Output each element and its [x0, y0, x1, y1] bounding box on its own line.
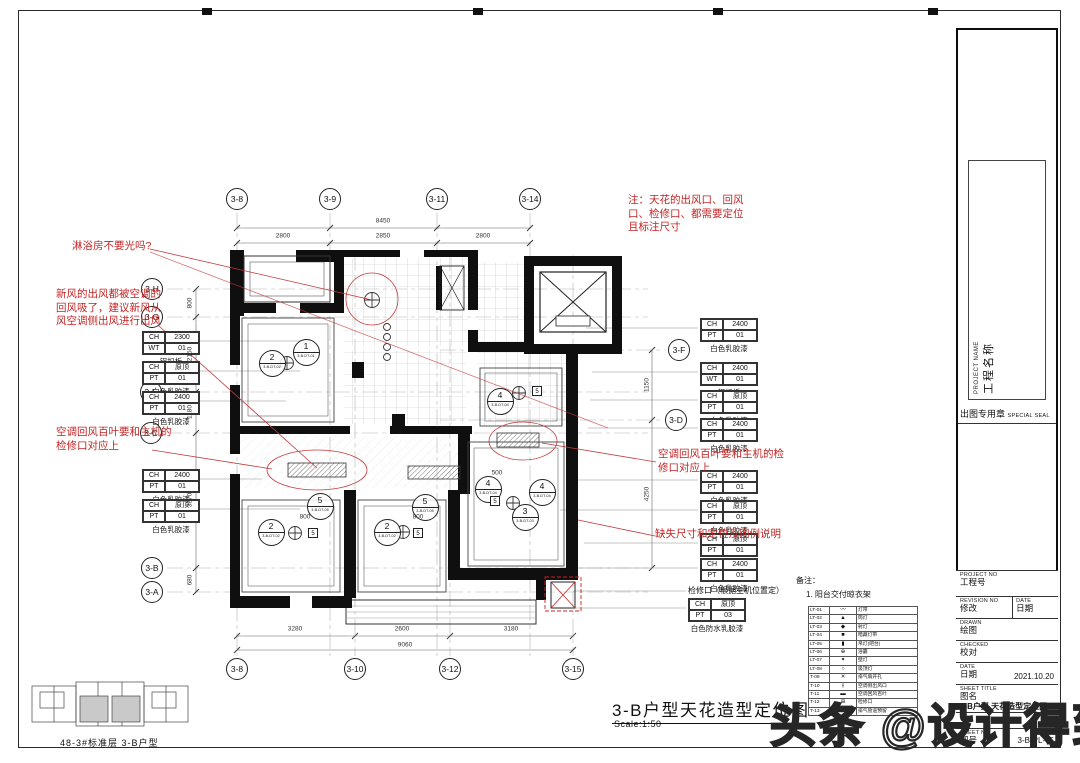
grid-bubble: 3-D	[665, 409, 687, 431]
grid-bubble: 3-A	[141, 581, 163, 603]
red-annotation: 空调回风百叶要和主机的检修口对应上	[56, 426, 174, 453]
grid-bubble: 3-8	[226, 188, 248, 210]
dim-label: 8450	[376, 218, 390, 225]
detail-callout: 23-B-DT-02	[258, 519, 285, 546]
text-label: 1. 阳台交付晾衣架	[806, 589, 871, 600]
grid-bubble: 3-15	[562, 658, 584, 680]
red-annotation: 缺失尺寸和定位及图例说明	[655, 528, 825, 542]
dim-label: 680	[187, 575, 194, 586]
titleblock-drawn: DRAWN绘图	[956, 618, 1058, 640]
detail-callout: 13-B-DT-01	[293, 339, 320, 366]
titleblock-rev-date: DATE日期	[1012, 597, 1036, 618]
dim-label: 2800	[476, 233, 490, 240]
legend-row: LT-01〰灯带	[809, 607, 918, 615]
dim-label: 500	[492, 470, 503, 477]
grid-bubble: 3-12	[439, 658, 461, 680]
fold-mark-icon	[202, 8, 212, 15]
grid-bubble: 3-F	[668, 339, 690, 361]
lamp-ref-square: 5	[490, 496, 500, 506]
scale-label: Scale:1:50	[614, 719, 662, 729]
keyplan-caption: 48-3#标准层 3-B户型	[60, 736, 159, 749]
finish-tag: CH2400PT01白色乳胶漆	[700, 318, 758, 354]
dim-label: 800	[300, 514, 311, 521]
detail-callout: 43-B-DT-04	[529, 479, 556, 506]
dim-label: 3180	[504, 626, 518, 633]
dim-label: 2850	[376, 233, 390, 240]
grid-bubble: 3-14	[519, 188, 541, 210]
lamp-ref-square: 5	[413, 528, 423, 538]
text-label: 备注：	[796, 575, 820, 586]
legend-row: T-09✕排气扇开孔	[809, 674, 918, 682]
grid-bubble: 3-11	[426, 188, 448, 210]
legend-row: LT-03◆射灯	[809, 623, 918, 631]
legend-row: LT-06⊕浴霸	[809, 649, 918, 657]
fold-mark-icon	[713, 8, 723, 15]
lamp-ref-square: 5	[308, 528, 318, 538]
date-value: 2021.10.20	[1014, 672, 1054, 681]
dim-label: 9060	[398, 642, 412, 649]
red-annotation: 新风的出风都被空调的回风吸了，建议新风从风空调侧出风进行出风	[56, 288, 168, 329]
grid-bubble: 3-9	[319, 188, 341, 210]
grid-bubble: 3-10	[344, 658, 366, 680]
lamp-ref-square: 5	[532, 386, 542, 396]
dim-label: 2600	[395, 626, 409, 633]
red-annotation: 空调回风百叶要和主机的检修口对应上	[658, 448, 790, 475]
titleblock-date: DATE日期 2021.10.20	[956, 662, 1058, 684]
legend-row: LT-02▲筒灯	[809, 615, 918, 623]
detail-callout: 43-B-DT-04	[487, 388, 514, 415]
dim-label: 800	[187, 298, 194, 309]
fold-mark-icon	[928, 8, 938, 15]
legend-row: LT-04■暗藏灯带	[809, 632, 918, 640]
legend-row: LT-05▮吊灯(吧台)	[809, 640, 918, 648]
grid-bubble: 3-B	[141, 557, 163, 579]
titleblock-revision: REVISION NO修改 DATE日期	[956, 596, 1058, 618]
dim-label: 1180	[187, 405, 194, 419]
titleblock-checked: CHECKED校对	[956, 640, 1058, 662]
dim-label: 3280	[288, 626, 302, 633]
red-annotation: 注：天花的出风口、回风口、检修口、都需要定位且标注尺寸	[628, 194, 750, 235]
legend-row: LT-07✦壁灯	[809, 657, 918, 665]
project-name: PROJECT NAME 工程名称	[974, 341, 996, 394]
dim-label: 3870	[187, 493, 194, 507]
detail-callout: 33-B-DT-03	[512, 504, 539, 531]
detail-callout: 23-B-DT-02	[374, 519, 401, 546]
watermark: 头条 @设计得到	[770, 690, 1080, 756]
project-name-cn: 工程名称	[980, 341, 996, 394]
legend-row: LT-08○吸顶灯	[809, 665, 918, 673]
dim-label: 1150	[644, 378, 651, 392]
seal-row: 出图专用章 SPECIAL SEAL	[958, 404, 1056, 424]
seal-en: SPECIAL SEAL	[1008, 413, 1050, 419]
dim-label: 4250	[644, 487, 651, 501]
grid-bubble: 3-8	[226, 658, 248, 680]
drawing-sheet: PROJECT NAME 工程名称 出图专用章 SPECIAL SEAL PRO…	[0, 0, 1080, 763]
dim-label: 2800	[276, 233, 290, 240]
finish-tag: CH原顶PT03白色防水乳胶漆	[688, 598, 746, 634]
detail-callout: 23-B-DT-02	[259, 350, 286, 377]
dim-label: 800	[413, 514, 424, 521]
dim-label: 2150	[187, 347, 194, 361]
fold-mark-icon	[473, 8, 483, 15]
seal-cn: 出图专用章	[960, 409, 1005, 419]
titleblock-project-no: PROJECT NO工程号	[956, 570, 1058, 596]
red-annotation: 淋浴房不要光吗?	[72, 240, 212, 254]
text-label: 检修口（根据主机位置定）	[688, 585, 784, 596]
